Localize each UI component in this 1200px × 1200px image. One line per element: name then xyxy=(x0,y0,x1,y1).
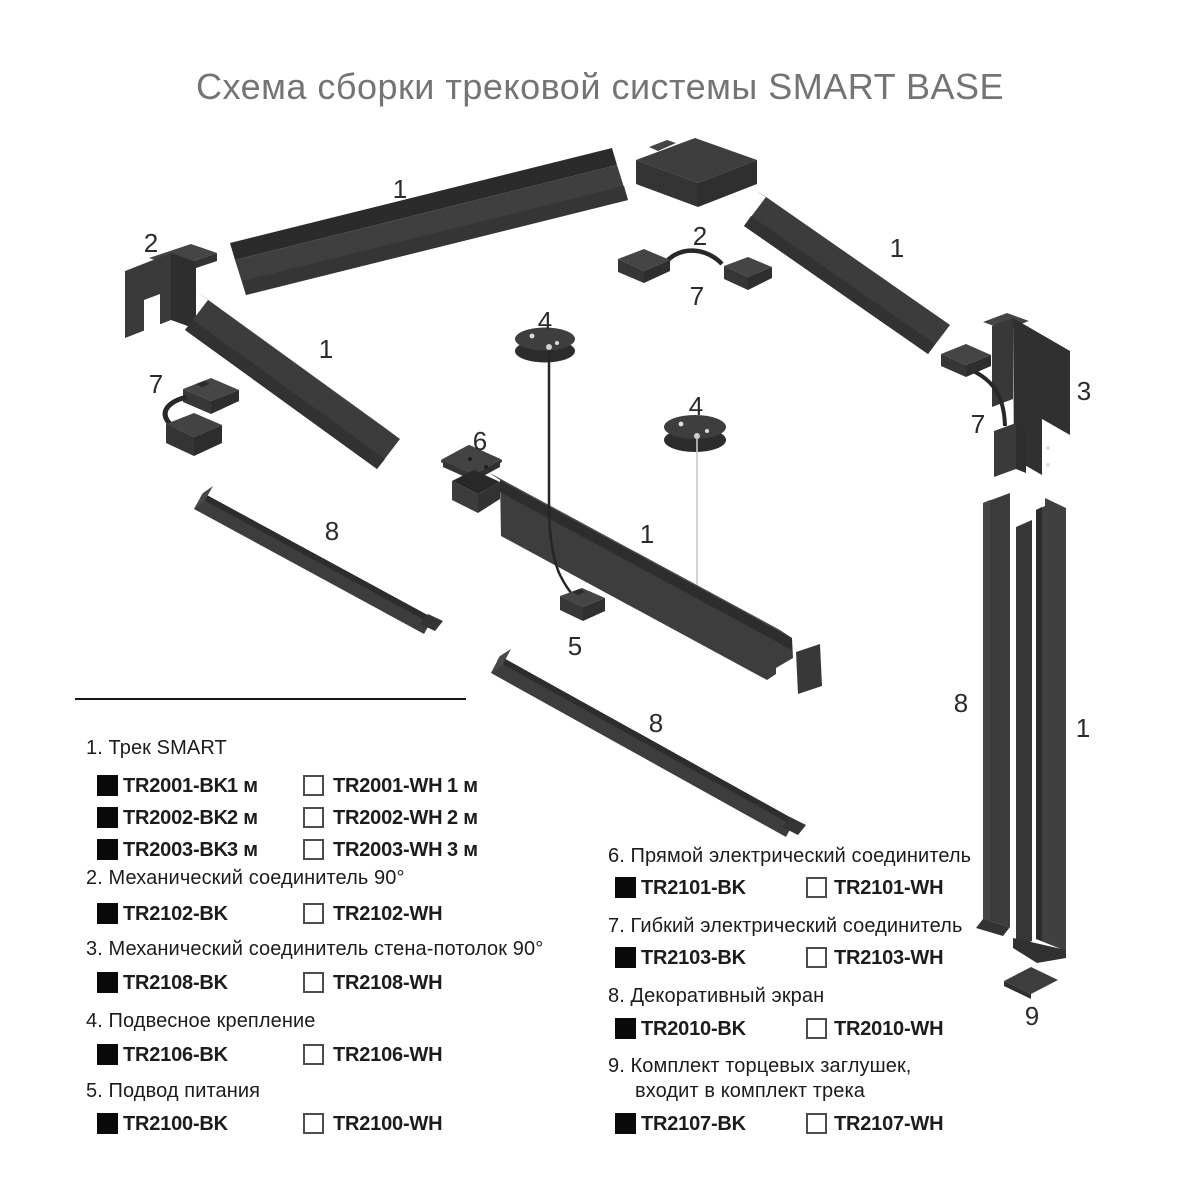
part-label-7: 7 xyxy=(690,281,704,311)
part-code: TR2001-WH xyxy=(333,775,442,797)
part-code: TR2002-BK xyxy=(123,807,228,829)
checkbox-empty-white xyxy=(806,1113,827,1134)
part-code: TR2102-BK xyxy=(123,903,228,925)
part-label-5: 5 xyxy=(568,631,582,661)
part-label-7: 7 xyxy=(149,369,163,399)
legend-row: TR2001-BK 1 м TR2001-WH 1 м xyxy=(86,775,586,799)
part-code: TR2103-BK xyxy=(641,947,746,969)
legend-section-straight-connector: 6. Прямой электрический соединитель TR21… xyxy=(608,845,971,868)
legend-row: TR2103-BK TR2103-WH xyxy=(608,947,1108,971)
power-feed-box xyxy=(560,588,605,621)
part-code: TR2106-WH xyxy=(333,1044,442,1066)
legend-row: TR2100-BK TR2100-WH xyxy=(86,1113,586,1137)
legend-row: TR2002-BK 2 м TR2002-WH 2 м xyxy=(86,807,586,831)
track-segment-top-right xyxy=(744,189,950,354)
part-label-8: 8 xyxy=(325,516,339,546)
part-label-6: 6 xyxy=(473,426,487,456)
part-code: TR2107-BK xyxy=(641,1113,746,1135)
end-cap xyxy=(1004,967,1058,999)
checkbox-filled-black xyxy=(97,1113,118,1134)
checkbox-filled-black xyxy=(97,807,118,828)
part-code: TR2003-BK xyxy=(123,839,228,861)
part-code: TR2107-WH xyxy=(834,1113,943,1135)
part-code: TR2106-BK xyxy=(123,1044,228,1066)
track-segment-top-left xyxy=(230,148,628,295)
part-code: TR2103-WH xyxy=(834,947,943,969)
part-code: TR2002-WH xyxy=(333,807,442,829)
part-code: TR2102-WH xyxy=(333,903,442,925)
part-code: TR2003-WH xyxy=(333,839,442,861)
part-label-1: 1 xyxy=(1076,713,1090,743)
part-size: 1 м xyxy=(227,775,258,797)
legend-row: TR2107-BK TR2107-WH xyxy=(608,1113,1108,1137)
part-label-7: 7 xyxy=(971,409,985,439)
checkbox-empty-white xyxy=(303,903,324,924)
part-code: TR2010-WH xyxy=(834,1018,943,1040)
decorative-screen-left xyxy=(194,486,443,634)
checkbox-empty-white xyxy=(303,775,324,796)
part-label-2: 2 xyxy=(144,228,158,258)
legend-row: TR2003-BK 3 м TR2003-WH 3 м xyxy=(86,839,586,863)
part-code: TR2108-WH xyxy=(333,972,442,994)
legend-section-title: 1. Трек SMART xyxy=(86,737,227,760)
part-code: TR2100-WH xyxy=(333,1113,442,1135)
legend-section-track: 1. Трек SMART TR2001-BK 1 м TR2001-WH 1 … xyxy=(86,737,227,760)
part-code: TR2100-BK xyxy=(123,1113,228,1135)
part-size: 1 м xyxy=(447,775,478,797)
part-label-2: 2 xyxy=(693,221,707,251)
checkbox-filled-black xyxy=(97,903,118,924)
legend-section-wall-ceiling-connector: 3. Механический соединитель стена-потоло… xyxy=(86,938,543,961)
legend-section-title: 9. Комплект торцевых заглушек, xyxy=(608,1055,911,1078)
part-label-8: 8 xyxy=(954,688,968,718)
part-label-4: 4 xyxy=(538,306,552,336)
checkbox-empty-white xyxy=(303,807,324,828)
part-code: TR2101-WH xyxy=(834,877,943,899)
legend-section-title: 3. Механический соединитель стена-потоло… xyxy=(86,938,543,961)
legend-section-title: 6. Прямой электрический соединитель xyxy=(608,845,971,868)
track-segment-middle xyxy=(488,472,822,694)
checkbox-filled-black xyxy=(615,1113,636,1134)
part-label-1: 1 xyxy=(890,233,904,263)
legend-row: TR2101-BK TR2101-WH xyxy=(608,877,1108,901)
checkbox-empty-white xyxy=(806,947,827,968)
checkbox-empty-white xyxy=(303,972,324,993)
legend-section-title: 5. Подвод питания xyxy=(86,1080,260,1103)
legend-section-power-feed: 5. Подвод питания TR2100-BK TR2100-WH xyxy=(86,1080,260,1103)
part-label-4: 4 xyxy=(689,391,703,421)
checkbox-filled-black xyxy=(615,1018,636,1039)
checkbox-empty-white xyxy=(806,1018,827,1039)
checkbox-filled-black xyxy=(97,1044,118,1065)
checkbox-empty-white xyxy=(303,1113,324,1134)
part-label-3: 3 xyxy=(1077,376,1091,406)
flexible-connector-left xyxy=(165,378,239,456)
legend-row: TR2108-BK TR2108-WH xyxy=(86,972,586,996)
legend-section-title: 2. Механический соединитель 90° xyxy=(86,867,405,890)
checkbox-empty-white xyxy=(303,1044,324,1065)
part-size: 3 м xyxy=(447,839,478,861)
part-size: 2 м xyxy=(447,807,478,829)
legend-row: TR2106-BK TR2106-WH xyxy=(86,1044,586,1068)
legend-divider xyxy=(75,698,466,700)
part-label-8: 8 xyxy=(649,708,663,738)
track-end-piece xyxy=(796,644,822,694)
part-code: TR2010-BK xyxy=(641,1018,746,1040)
legend-section-title: 8. Декоративный экран xyxy=(608,985,824,1008)
checkbox-filled-black xyxy=(97,839,118,860)
decorative-screen-vertical xyxy=(976,493,1010,936)
checkbox-empty-white xyxy=(303,839,324,860)
part-label-1: 1 xyxy=(319,334,333,364)
legend-section-title-line2: входит в комплект трека xyxy=(635,1080,865,1103)
part-code: TR2101-BK xyxy=(641,877,746,899)
legend-section-mech-connector: 2. Механический соединитель 90° TR2102-B… xyxy=(86,867,405,890)
part-size: 2 м xyxy=(227,807,258,829)
legend-section-title: 7. Гибкий электрический соединитель xyxy=(608,915,962,938)
part-code: TR2108-BK xyxy=(123,972,228,994)
checkbox-filled-black xyxy=(97,775,118,796)
part-size: 3 м xyxy=(227,839,258,861)
legend-row: TR2102-BK TR2102-WH xyxy=(86,903,586,927)
legend-row: TR2010-BK TR2010-WH xyxy=(608,1018,1108,1042)
legend-section-suspension: 4. Подвесное крепление TR2106-BK TR2106-… xyxy=(86,1010,316,1033)
checkbox-filled-black xyxy=(97,972,118,993)
legend-section-title: 4. Подвесное крепление xyxy=(86,1010,316,1033)
screw-hole xyxy=(1046,463,1050,467)
screw-hole xyxy=(1046,446,1050,450)
checkbox-empty-white xyxy=(806,877,827,898)
legend-section-decorative-screen: 8. Декоративный экран TR2010-BK TR2010-W… xyxy=(608,985,824,1008)
legend-section-end-caps: 9. Комплект торцевых заглушек, входит в … xyxy=(608,1055,911,1078)
part-label-1: 1 xyxy=(640,519,654,549)
part-label-1: 1 xyxy=(393,174,407,204)
checkbox-filled-black xyxy=(615,947,636,968)
legend-section-flexible-connector: 7. Гибкий электрический соединитель TR21… xyxy=(608,915,962,938)
corner-connector-top xyxy=(636,138,757,207)
part-code: TR2001-BK xyxy=(123,775,228,797)
checkbox-filled-black xyxy=(615,877,636,898)
straight-connector xyxy=(443,447,500,513)
